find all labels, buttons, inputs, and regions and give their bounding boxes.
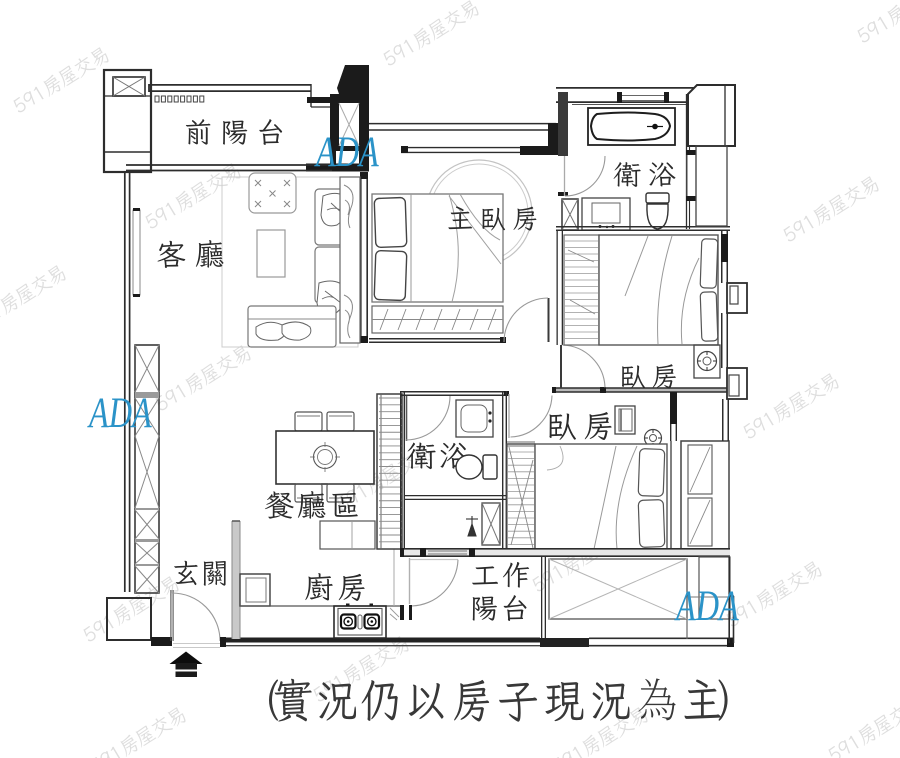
- svg-text:ADA: ADA: [86, 390, 152, 438]
- svg-text:ADA: ADA: [313, 129, 379, 177]
- svg-text:ADA: ADA: [673, 583, 739, 631]
